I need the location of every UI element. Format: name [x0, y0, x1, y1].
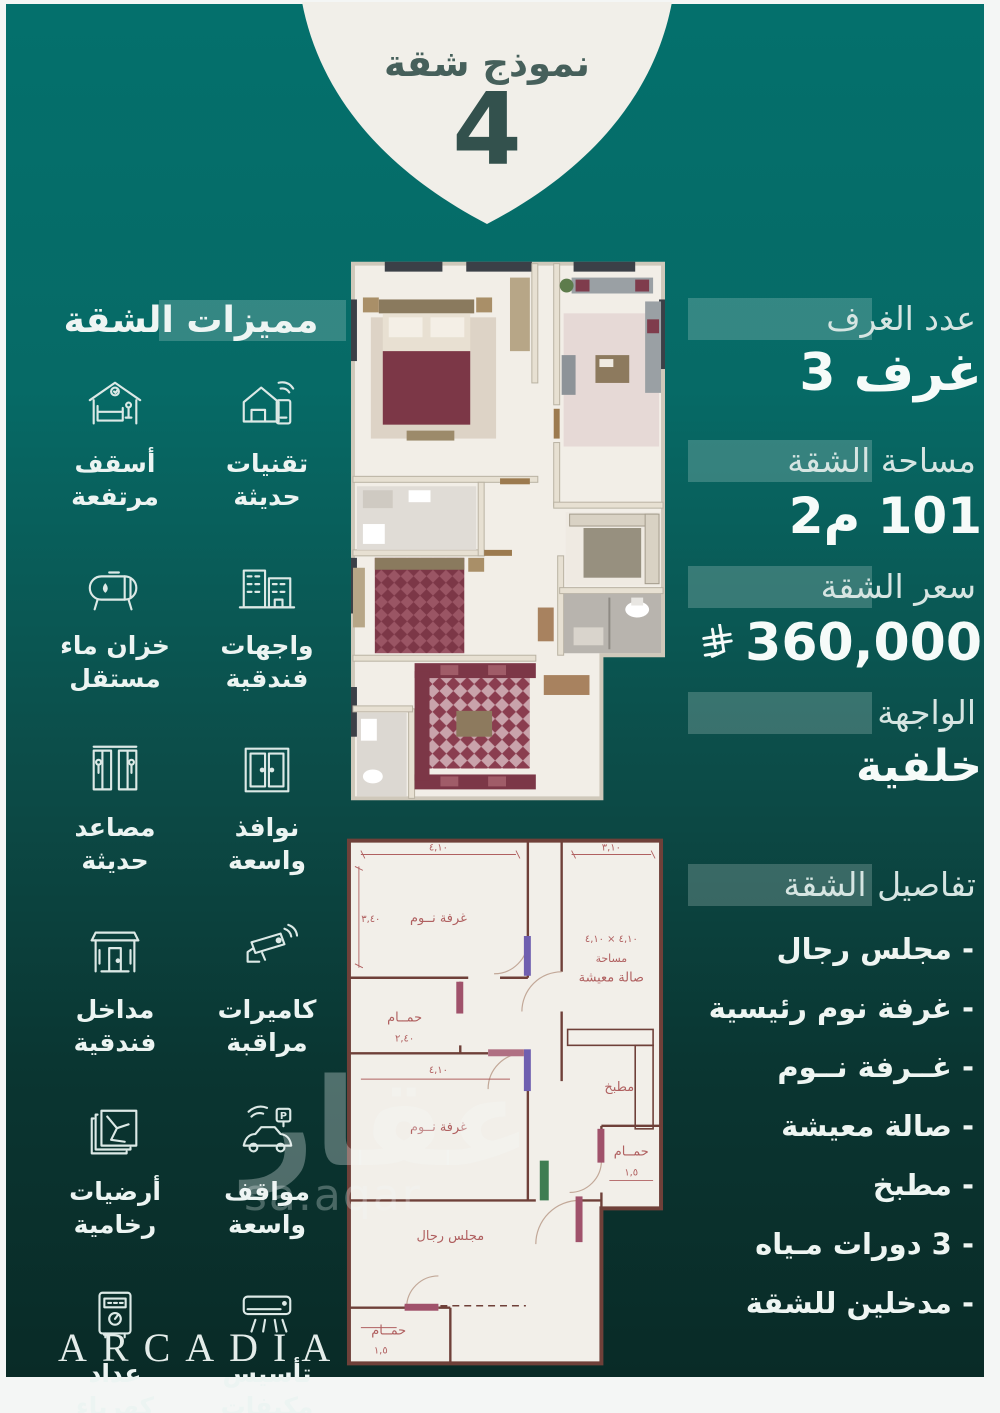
feature-label: أسقف مرتفعة	[54, 447, 176, 513]
feature-label: واجهات فندقية	[206, 629, 328, 695]
hotel-facades-icon	[236, 557, 298, 619]
feature-label: مداخل فندقية	[54, 993, 176, 1059]
feature-item: خزان ماء مستقل	[40, 557, 190, 695]
wide-windows-icon	[236, 739, 298, 801]
smart-home-icon	[236, 375, 298, 437]
area-label: مساحة الشقة	[694, 438, 982, 486]
plan-label-majlis: مجلس رجال	[417, 1229, 485, 1244]
plan-dim-top-right: ٣,١٠	[602, 843, 621, 854]
plan-label-bath-right: حمــام	[614, 1145, 649, 1160]
plan-dim-bath-bottom: ١,٥	[374, 1345, 388, 1356]
feature-item: تقنيات حديثة	[192, 375, 342, 513]
list-item: - مجلس رجال	[694, 932, 982, 966]
floorplan-3d-render	[349, 258, 667, 804]
feature-item: P مواقف واسعة	[192, 1103, 342, 1241]
water-tank-icon	[84, 557, 146, 619]
hotel-entrances-icon	[84, 921, 146, 983]
plan-label-living-word: مساحة	[596, 952, 628, 965]
feature-label: مواقف واسعة	[206, 1175, 328, 1241]
floorplan-2d-drawing: غرفة نــوم ٤,١٠ × ٤,١٠ مساحة صالة معيشة …	[341, 831, 669, 1371]
feature-item: واجهات فندقية	[192, 557, 342, 695]
list-item: - 3 دورات مـياه	[694, 1227, 982, 1261]
parking-icon: P	[236, 1103, 298, 1165]
features-section: مميزات الشقة تقنيات حديثة أسقف مرتفعة	[40, 296, 342, 1413]
marble-floors-icon	[84, 1103, 146, 1165]
list-item: - صالة معيشة	[694, 1109, 982, 1143]
feature-item: نوافذ واسعة	[192, 739, 342, 877]
stat-area: مساحة الشقة 101 م2	[694, 438, 982, 546]
feature-label: مصاعد حديثة	[54, 811, 176, 877]
poster-page: نموذج شقة 4	[0, 0, 1000, 1413]
arcadia-logo: ARCADIA	[58, 1324, 345, 1371]
plan-label-bath-bottom: حمــام	[371, 1324, 406, 1339]
model-badge: نموذج شقة 4	[302, 2, 672, 232]
high-ceilings-icon	[84, 375, 146, 437]
area-value: 101 م2	[694, 486, 982, 546]
feature-label: خزان ماء مستقل	[54, 629, 176, 695]
feature-item: مداخل فندقية	[40, 921, 190, 1059]
apartment-details-list: تفاصيل الشقة - مجلس رجال - غرفة نوم رئيس…	[694, 862, 982, 1345]
feature-item: كاميرات مراقبة	[192, 921, 342, 1059]
price-label: سعر الشقة	[694, 564, 982, 612]
plan-dim-bath-right: ١,٥	[624, 1168, 638, 1179]
plan-dim-bath-mid: ٢,٤٠	[395, 1033, 414, 1044]
cctv-icon	[236, 921, 298, 983]
plan-dim-bottom: ٤,١٠	[429, 1065, 448, 1076]
rooms-value: 3 غرف	[694, 344, 982, 404]
list-item: - مدخلين للشقة	[694, 1286, 982, 1320]
elevators-icon	[84, 739, 146, 801]
feature-item: أسقف مرتفعة	[40, 375, 190, 513]
list-item: - مطبخ	[694, 1168, 982, 1202]
plan-label-living: صالة معيشة	[579, 971, 644, 986]
plan-dim-top-left: ٤,١٠	[429, 843, 448, 854]
features-header: مميزات الشقة	[40, 296, 342, 349]
poster-background: نموذج شقة 4	[6, 4, 984, 1377]
price-amount: 360,000	[745, 612, 982, 674]
saudi-riyal-symbol	[701, 624, 735, 662]
stat-facade: الواجهة خلفية	[694, 690, 982, 795]
feature-label: تقنيات حديثة	[206, 447, 328, 513]
list-item: - غرفة نوم رئيسية	[694, 991, 982, 1025]
plan-label-living-dims: ٤,١٠ × ٤,١٠	[585, 934, 638, 945]
plan-dim-left: ٣,٤٠	[361, 914, 380, 925]
svg-text:P: P	[280, 1111, 287, 1122]
plan-label-bath-mid: حمــام	[387, 1010, 422, 1025]
stat-rooms: عدد الغرف 3 غرف	[694, 296, 982, 404]
plan-label-bedroom-top: غرفة نــوم	[410, 911, 467, 926]
details-list-header: تفاصيل الشقة	[694, 862, 982, 910]
facade-label: الواجهة	[694, 690, 982, 738]
features-grid: تقنيات حديثة أسقف مرتفعة واجها	[40, 375, 342, 1413]
feature-label: أرضيات رخامية	[54, 1175, 176, 1241]
badge-number: 4	[302, 80, 672, 180]
plan-label-bedroom-bottom: غرفة نــوم	[410, 1120, 467, 1135]
feature-label: نوافذ واسعة	[206, 811, 328, 877]
feature-label: كاميرات مراقبة	[206, 993, 328, 1059]
feature-item: أرضيات رخامية	[40, 1103, 190, 1241]
stat-price: سعر الشقة 360,000	[694, 564, 982, 674]
rooms-label: عدد الغرف	[694, 296, 982, 344]
facade-value: خلفية	[694, 738, 982, 795]
list-item: - غــرفة نــوم	[694, 1050, 982, 1084]
plan-label-kitchen: مطبخ	[604, 1080, 634, 1095]
feature-item: مصاعد حديثة	[40, 739, 190, 877]
price-value: 360,000	[694, 612, 982, 674]
